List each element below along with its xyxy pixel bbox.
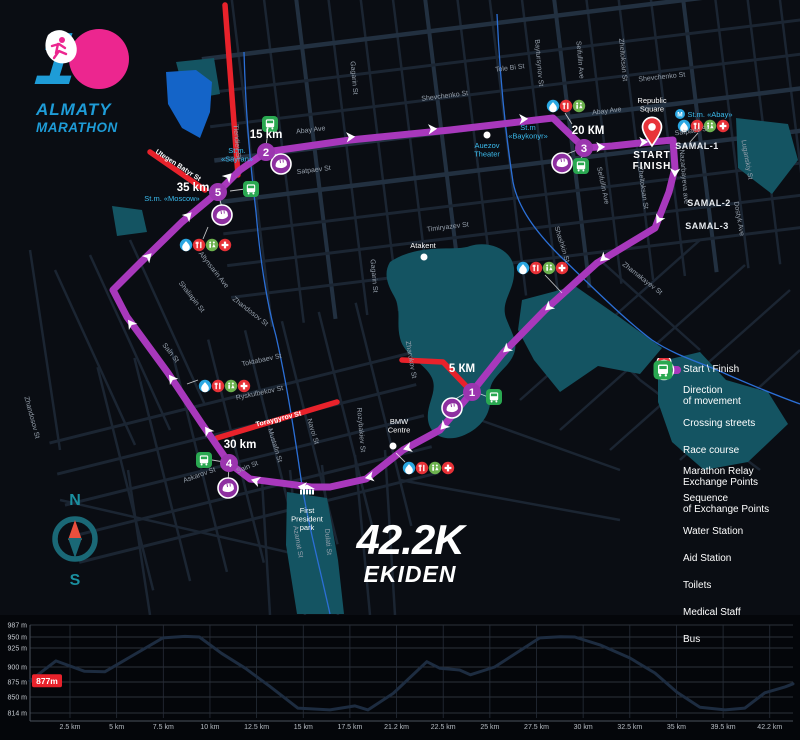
toilets-icon [429,462,441,474]
legend-item-crossing-bar: Crossing streets [653,412,799,434]
relay-icon [653,466,683,488]
aid-icon [653,547,683,569]
direction-arrow-icon [653,385,683,407]
legend-label: Direction of movement [683,385,741,407]
svg-text:3: 3 [581,143,587,155]
medical-staff-icon [238,380,250,392]
sequence-icon: 5 [653,493,683,515]
x-axis-tick-label: 2.5 km [59,724,80,731]
exchange-point-2: 2 [257,143,275,161]
legend-label: Crossing streets [683,418,755,429]
relay-exchange-icon [442,398,462,418]
km-marker-label: 15 km [250,129,283,141]
poi-dot [421,254,428,261]
svg-text:1: 1 [469,387,475,399]
x-axis-tick-label: 39.5 km [711,724,736,731]
medical-staff-icon [442,462,454,474]
x-axis-tick-label: 22.5 km [431,724,456,731]
legend-label: Medical Staff [683,607,741,618]
x-axis-tick-label: 35 km [667,724,686,731]
legend-label: Sequence of Exchange Points [683,493,769,515]
event-logo: 1 ALMATY MARATHON [36,24,129,135]
toilets-icon [573,100,585,112]
legend-item-aid: Aid Station [653,547,799,569]
km-marker-label: 20 КМ [572,125,605,137]
svg-text:M: M [677,111,682,118]
aid-station-icon [530,262,542,274]
y-axis-tick-label: 850 m [8,695,28,702]
legend-item-toilets: Toilets [653,574,799,596]
x-axis-tick-label: 17.5 km [337,724,362,731]
medical-icon [653,601,683,623]
x-axis-tick-label: 32.5 km [617,724,642,731]
bus-icon [486,389,502,405]
legend-item-medical: Medical Staff [653,601,799,623]
metro-label: St.m. «Moscow» [144,194,199,203]
poi-label: RepublicSquare [637,96,666,114]
crossing-bar-icon [653,412,683,434]
x-axis-tick-label: 12.5 km [244,724,269,731]
runner-icon [36,24,82,70]
x-axis-tick-label: 10 km [200,724,219,731]
relay-exchange-icon [212,205,232,225]
bus-icon [243,181,259,197]
water-icon [653,520,683,542]
exchange-point-3: 3 [575,139,593,157]
legend-item-sequence: 5Sequence of Exchange Points [653,493,799,515]
aid-station-icon [416,462,428,474]
map-legend: Start \ FinishDirection of movementCross… [653,358,799,655]
course-bar-icon [653,439,683,461]
x-axis-tick-label: 25 km [480,724,499,731]
metro-label: AuezovTheater [474,141,500,159]
y-axis-tick-label: 875 m [8,680,28,687]
water-station-icon [403,462,415,474]
legend-label: Aid Station [683,553,731,564]
toilets-icon [653,574,683,596]
legend-label: Marathon Relay Exchange Points [683,466,758,488]
exchange-point-1: 1 [463,383,481,401]
x-axis-tick-label: 15 km [294,724,313,731]
start-label: START [633,150,671,161]
aid-station-icon [560,100,572,112]
legend-label: Water Station [683,526,743,537]
km-marker-label: 30 km [224,439,257,451]
bus-icon [196,452,212,468]
legend-item-relay: Marathon Relay Exchange Points [653,466,799,488]
y-axis-tick-label: 900 m [8,665,28,672]
exchange-point-5: 5 [209,183,227,201]
x-axis-tick-label: 27.5 km [524,724,549,731]
medical-staff-icon [556,262,568,274]
legend-label: Toilets [683,580,711,591]
toilets-icon [543,262,555,274]
svg-text:2: 2 [263,147,269,159]
medical-staff-icon [717,120,729,132]
water-station-icon [547,100,559,112]
race-name: EKIDEN [325,562,495,586]
metro-label: St.m. «Abay» [687,110,732,119]
km-marker-label: 35 km [177,182,210,194]
legend-label: Bus [683,634,700,645]
relay-exchange-icon [552,153,572,173]
metro-icon: M [675,109,685,119]
poster: 12345Tole Bi StShevchenko StShevchenko S… [0,0,800,740]
compass-south: S [70,572,81,589]
legend-item-bus: Bus [653,628,799,650]
race-title: 42.2K EKIDEN [325,518,495,586]
finish-label: FINISH [633,161,672,172]
x-axis-tick-label: 21.2 km [384,724,409,731]
medical-staff-icon [219,239,231,251]
svg-text:877m: 877m [36,676,58,686]
y-axis-tick-label: 925 m [8,646,28,653]
km-marker-label: 5 КМ [449,363,475,375]
legend-item-water: Water Station [653,520,799,542]
y-axis-tick-label: 950 m [8,635,28,642]
compass-north: N [69,492,81,509]
water-station-icon [199,380,211,392]
x-axis-tick-label: 5 km [109,724,124,731]
bus-icon [573,158,589,174]
svg-text:4: 4 [226,458,233,470]
start-elevation-badge: 877m [32,674,62,687]
relay-exchange-icon [271,154,291,174]
x-axis-tick-label: 30 km [574,724,593,731]
district-label: SAMAL-1 [675,141,719,151]
relay-exchange-icon [218,478,238,498]
bus-icon [654,361,673,380]
park-area [112,206,147,236]
race-distance: 42.2K [325,518,495,562]
y-axis-tick-label: 987 m [8,623,28,630]
district-label: SAMAL-2 [687,198,731,208]
legend-label: Race course [683,445,739,456]
svg-text:5: 5 [215,187,221,199]
logo-event: MARATHON [36,120,129,135]
x-axis-tick-label: 42.2 km [757,724,782,731]
legend-label: Start \ Finish [683,364,739,375]
logo-runner-badge [69,29,129,89]
aid-station-icon [193,239,205,251]
logo-city: ALMATY [36,100,129,120]
water-station-icon [180,239,192,251]
toilets-icon [225,380,237,392]
poi-label: Atakent [410,241,436,250]
toilets-icon [206,239,218,251]
legend-item-direction-arrow: Direction of movement [653,385,799,407]
water-station-icon [517,262,529,274]
y-axis-tick-label: 814 m [8,711,28,718]
district-label: SAMAL-3 [685,221,729,231]
bus-icon [653,628,683,650]
poi-dot [484,132,491,139]
x-axis-tick-label: 7.5 km [153,724,174,731]
poi-dot [390,443,397,450]
poi-label: BMWCentre [388,417,411,435]
compass-rose: N S [44,486,106,592]
aid-station-icon [212,380,224,392]
legend-item-course-bar: Race course [653,439,799,461]
